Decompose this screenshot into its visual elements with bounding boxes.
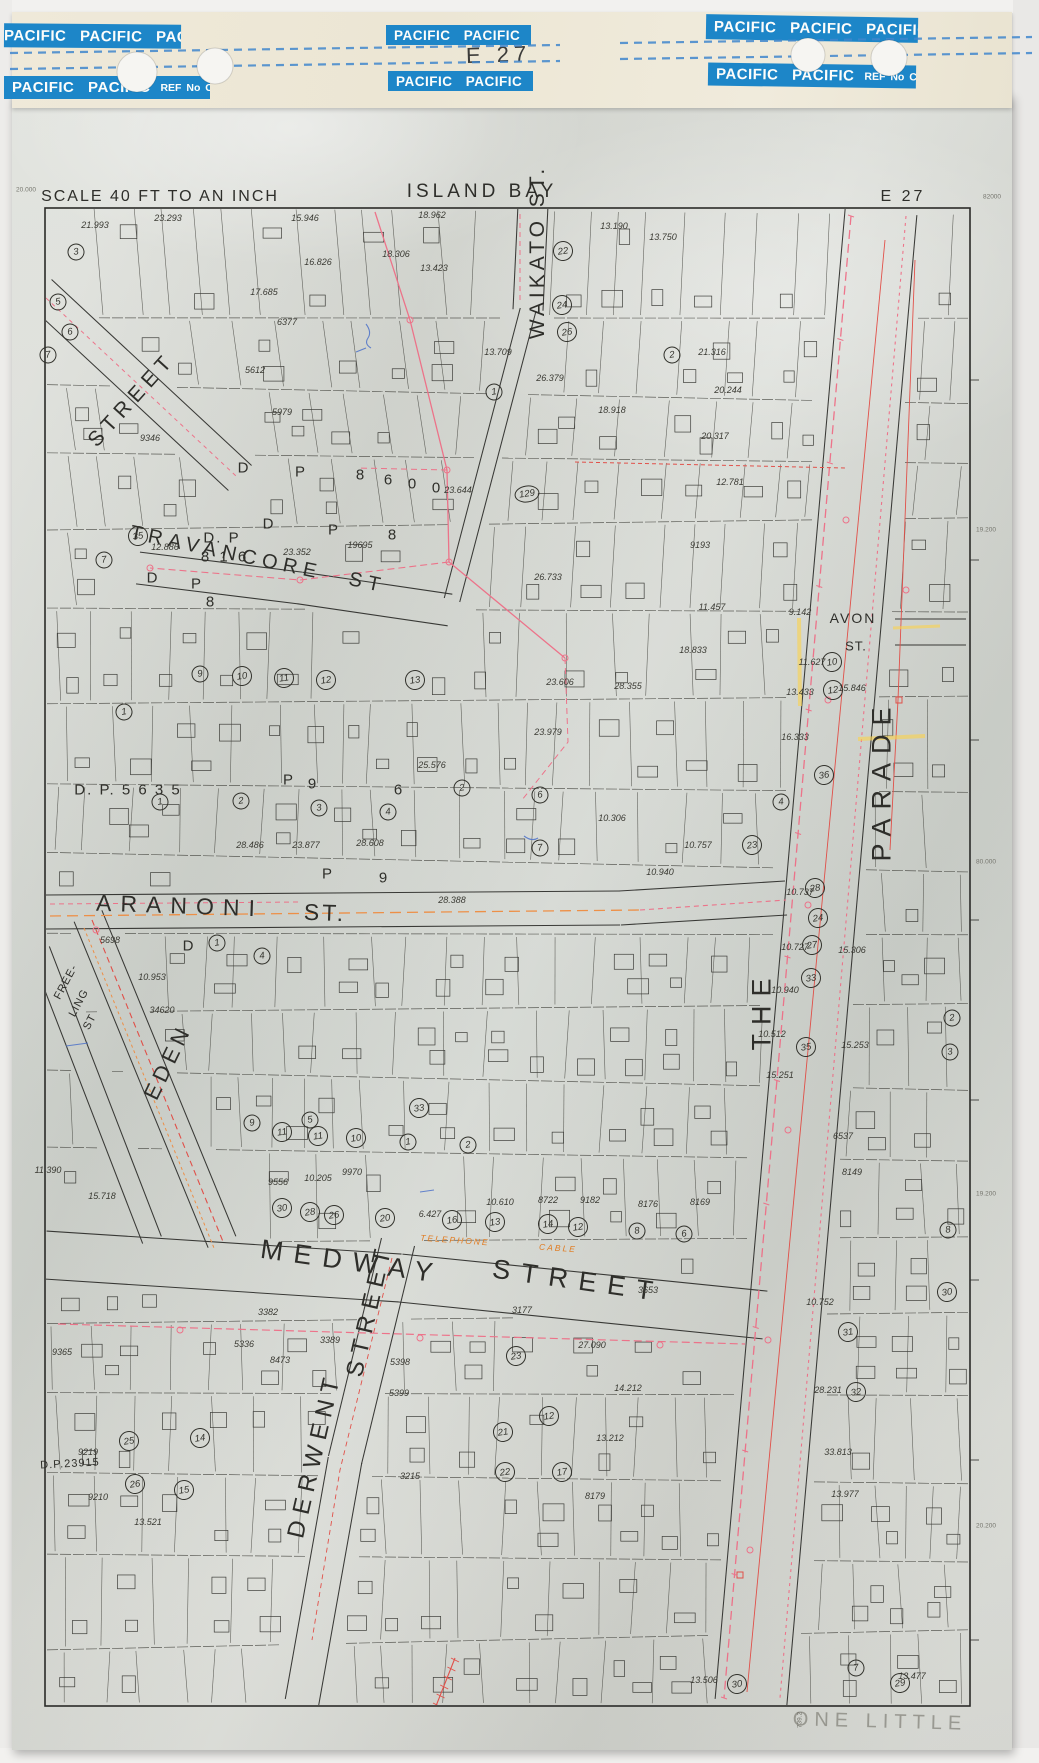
scanned-survey-map-page: { "tapes": { "left_top": "PACIFIC PACIFI… — [0, 0, 1039, 1763]
map-linework — [0, 0, 1039, 1763]
